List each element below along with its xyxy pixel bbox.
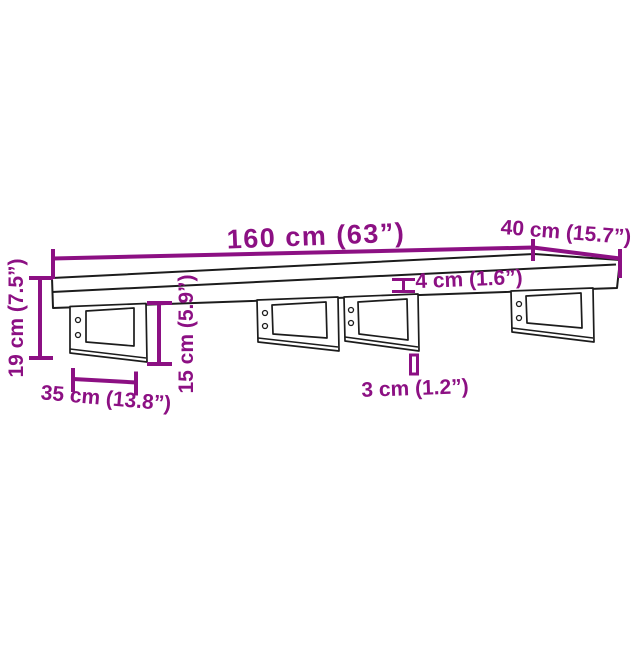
product-dimension-diagram: 160 cm (63”) 40 cm (15.7”) 19 cm (7.5”) …	[0, 0, 640, 640]
bracket-inner-opening	[358, 299, 408, 340]
dim-total-height-label: 19 cm (7.5”)	[5, 258, 28, 377]
bracket-mid-right	[344, 294, 419, 351]
screw-hole	[349, 321, 354, 326]
dim-bracket-depth-label: 35 cm (13.8”)	[40, 381, 172, 415]
bracket-inner-opening	[86, 308, 134, 346]
screw-hole	[76, 333, 81, 338]
bracket-right	[511, 288, 594, 342]
dim-length-label: 160 cm (63”)	[226, 217, 406, 254]
bracket-inner-opening	[272, 302, 327, 338]
dim-bracket-height-label: 15 cm (5.9”)	[175, 274, 198, 393]
screw-hole	[517, 302, 522, 307]
screw-hole	[263, 324, 268, 329]
shelf-diagram-canvas: 160 cm (63”) 40 cm (15.7”) 19 cm (7.5”) …	[0, 0, 640, 640]
screw-hole	[517, 316, 522, 321]
screw-hole	[76, 318, 81, 323]
dim-total-height: 19 cm (7.5”)	[5, 258, 53, 377]
screw-hole	[263, 311, 268, 316]
screw-hole	[349, 308, 354, 313]
dim-bracket-thickness-marker	[411, 355, 418, 374]
dim-bracket-thickness-label: 3 cm (1.2”)	[361, 375, 469, 402]
dim-depth-label: 40 cm (15.7”)	[500, 216, 632, 249]
dim-bracket-depth: 35 cm (13.8”)	[40, 368, 172, 416]
dim-bracket-thickness: 3 cm (1.2”)	[361, 355, 469, 402]
dim-bracket-depth-line	[73, 379, 136, 383]
dim-board-thickness-label: 4 cm (1.6”)	[415, 266, 523, 293]
bracket-inner-opening	[526, 293, 582, 328]
bracket-mid-left	[257, 297, 339, 351]
bracket-left	[70, 304, 147, 363]
